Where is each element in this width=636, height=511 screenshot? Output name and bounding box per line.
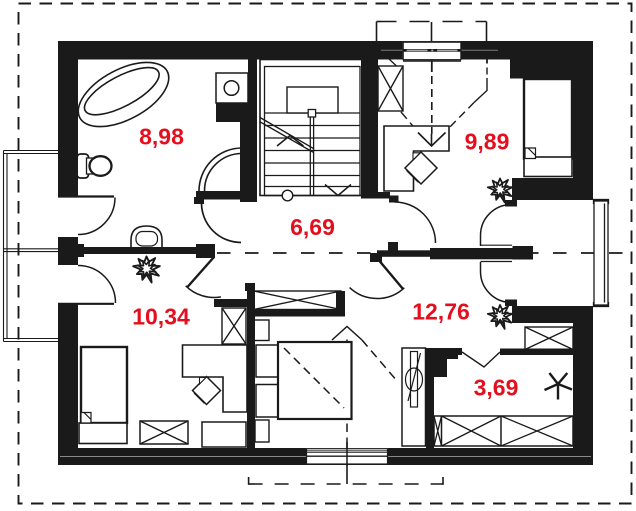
svg-text:6,69: 6,69 xyxy=(290,214,335,240)
svg-text:3,69: 3,69 xyxy=(474,375,519,401)
svg-text:12,76: 12,76 xyxy=(412,298,470,324)
svg-text:9,89: 9,89 xyxy=(465,129,510,155)
svg-text:8,98: 8,98 xyxy=(139,124,184,150)
svg-text:10,34: 10,34 xyxy=(132,304,190,330)
